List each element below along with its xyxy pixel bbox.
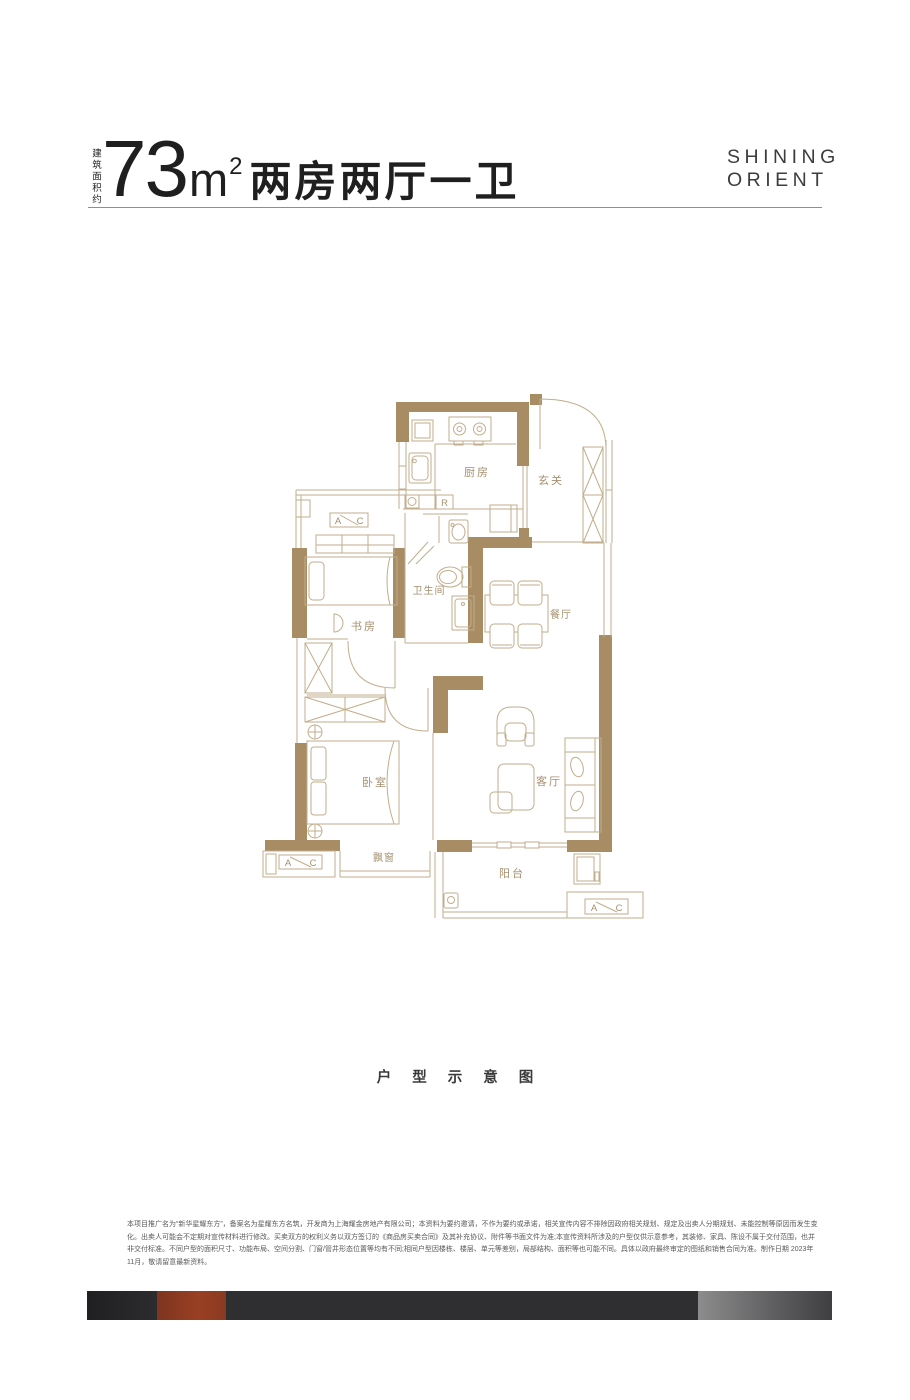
- dining-chair-icon: [490, 624, 514, 648]
- study-bed-icon: [305, 557, 397, 605]
- room-label-dining: 餐厅: [550, 608, 572, 621]
- study-door-arc: [348, 641, 395, 688]
- disclaimer-line: 本项目推广名为“新华星耀东方”，备案名为星耀东方名筑，开发商为上海耀金房地产有限…: [127, 1219, 797, 1232]
- room-label-bathroom: 卫生间: [413, 584, 446, 597]
- study-furniture: [305, 535, 397, 693]
- ac-platform-balcony: A C: [567, 892, 643, 918]
- page-title: 73 m2 两房两厅一卫: [88, 133, 520, 209]
- balcony-drain-icon: [444, 893, 458, 908]
- disclaimer: 本项目推广名为“新华星耀东方”，备案名为星耀东方名筑，开发商为上海耀金房地产有限…: [127, 1219, 797, 1269]
- area-exponent: 2: [229, 153, 242, 180]
- bedroom-furniture: [305, 697, 399, 838]
- area-unit: m2: [189, 152, 242, 207]
- caption-floorplan-schematic: 户型示意图: [0, 1066, 910, 1087]
- brand-line1: SHINING: [727, 146, 840, 169]
- fridge-label: R: [441, 498, 448, 509]
- living-furniture: [490, 707, 601, 832]
- room-label-living: 客厅: [536, 774, 562, 788]
- floor-drain-icon: [405, 495, 419, 508]
- armchair-icon: [497, 707, 534, 745]
- stove-icon: [449, 417, 491, 441]
- footer-strip-dark-segment: [87, 1291, 157, 1320]
- disclaimer-line: 非交付标准。不同户型的面积尺寸、功能布局、空间分割、门窗/管井形态位置等均有不同…: [127, 1244, 797, 1257]
- room-label-bay-window: 飘窗: [373, 851, 395, 864]
- ac-label-a: A: [285, 858, 292, 869]
- washing-machine-icon: [574, 854, 600, 884]
- ac-label-a: A: [591, 903, 598, 914]
- stool-icon: [334, 614, 343, 632]
- room-label-kitchen: 厨房: [464, 466, 490, 479]
- footer-strip-red-segment: [157, 1291, 226, 1320]
- ac-label-a: A: [335, 516, 342, 527]
- floorplan-svg: R: [250, 390, 660, 960]
- ac-platform-study: A C: [330, 513, 368, 527]
- dining-chair-icon: [518, 624, 542, 648]
- dining-furniture: [485, 581, 548, 648]
- study-sill-icon: [316, 535, 394, 553]
- layout-text: 两房两厅一卫: [250, 148, 520, 209]
- footer-strip-light-segment: [698, 1291, 832, 1320]
- disclaimer-line: 11月，敬请留意最新资料。: [127, 1257, 797, 1270]
- header-divider: [88, 207, 822, 208]
- room-label-bedroom: 卧室: [362, 775, 388, 789]
- ac-platform-bedroom: A C: [263, 851, 335, 877]
- footer-image-strip: [87, 1291, 832, 1320]
- bathroom-folding-door: [408, 542, 434, 564]
- coffee-table-icon: [498, 764, 534, 810]
- area-number: 73: [102, 133, 187, 205]
- balcony-fixtures: [444, 854, 600, 908]
- room-label-foyer: 玄关: [538, 473, 564, 487]
- area-unit-m: m: [189, 153, 228, 206]
- brand-line2: ORIENT: [727, 169, 840, 192]
- foyer-fixtures: [490, 447, 603, 543]
- bedroom-door-arc: [385, 688, 428, 731]
- room-label-balcony: 阳台: [499, 866, 525, 880]
- brand-logo: SHINING ORIENT: [727, 146, 840, 192]
- room-label-study: 书房: [351, 620, 377, 633]
- entry-door-arc: [540, 399, 606, 449]
- disclaimer-line: 化。出卖人可能会不定期对宣传材料进行修改。买卖双方的权利义务以双方签订的《商品房…: [127, 1232, 797, 1245]
